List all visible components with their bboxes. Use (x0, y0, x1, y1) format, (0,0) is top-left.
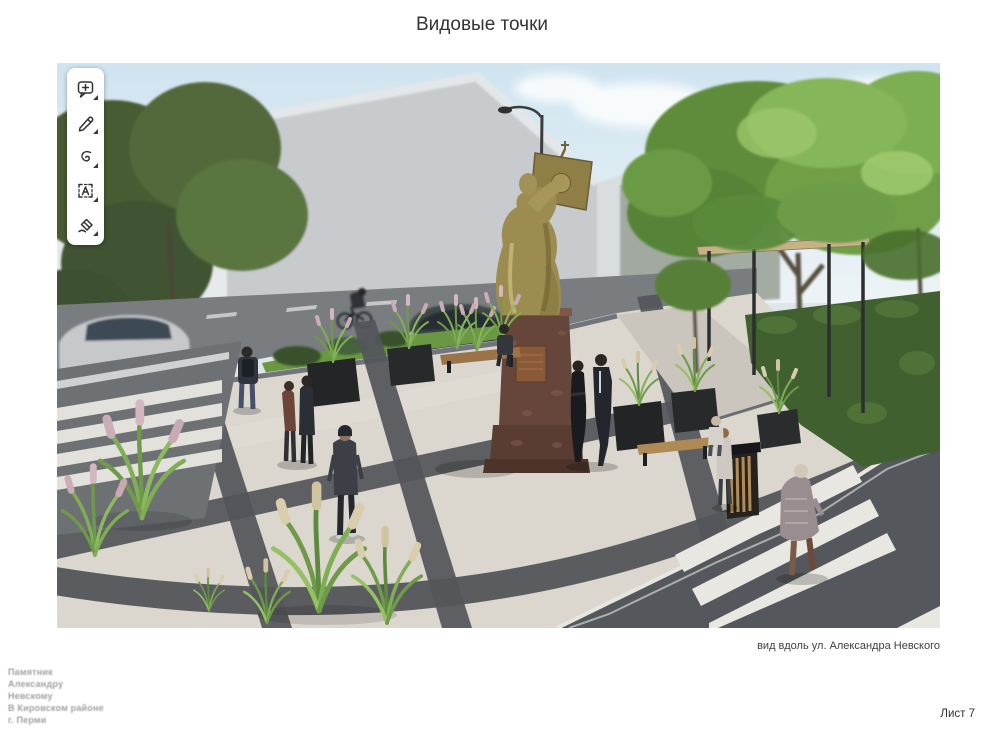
pen-button[interactable] (73, 110, 99, 135)
title-block-line: г. Перми (8, 714, 104, 726)
eraser-button[interactable] (73, 212, 99, 237)
rendering-viewport (57, 63, 940, 628)
title-block-line: Памятник (8, 666, 104, 678)
presentation-sheet: Видовые точки (0, 0, 1000, 737)
page-title: Видовые точки (0, 14, 982, 36)
title-block-line: Невскому (8, 690, 104, 702)
title-block-line: Александру (8, 678, 104, 690)
highlighter-button[interactable] (73, 144, 99, 169)
text-select-button[interactable] (73, 178, 99, 203)
annotation-toolbar (67, 68, 104, 245)
pen-icon (76, 113, 96, 133)
view-caption: вид вдоль ул. Александра Невского (757, 640, 940, 652)
text-select-icon (76, 181, 96, 201)
title-block: Памятник Александру Невскому В Кировском… (8, 666, 104, 726)
sheet-number: Лист 7 (940, 708, 975, 720)
eraser-icon (76, 215, 96, 235)
architectural-rendering (57, 63, 940, 628)
highlighter-icon (76, 147, 96, 167)
add-comment-button[interactable] (73, 76, 99, 101)
add-comment-icon (76, 79, 96, 99)
plaque (516, 346, 546, 382)
title-block-line: В Кировском районе (8, 702, 104, 714)
